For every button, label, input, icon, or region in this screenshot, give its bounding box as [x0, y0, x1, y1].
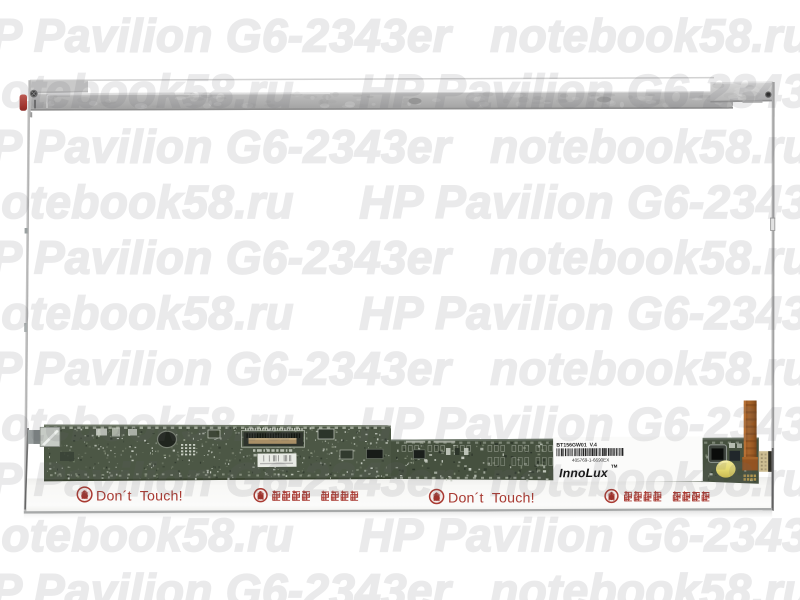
svg-text:HP Pavilion G6-2343er notebo: HP Pavilion G6-2343er notebook58.ru — [0, 10, 800, 62]
svg-text:HP Pavilion G6-2343er notebo: HP Pavilion G6-2343er notebook58.ru — [0, 343, 800, 395]
svg-text:notebook58.ru HP Pavilion: notebook58.ru HP Pavilion G6-2343er — [0, 287, 800, 339]
svg-text:notebook58.ru HP Pavilion: notebook58.ru HP Pavilion G6-2343er — [0, 398, 800, 450]
svg-text:HP Pavilion G6-2343er notebo: HP Pavilion G6-2343er notebook58.ru — [0, 121, 800, 173]
svg-text:notebook58.ru HP Pavilion: notebook58.ru HP Pavilion G6-2343er — [0, 509, 800, 561]
svg-text:HP Pavilion G6-2343er notebo: HP Pavilion G6-2343er notebook58.ru — [0, 232, 800, 284]
svg-text:notebook58.ru HP Pavilion: notebook58.ru HP Pavilion G6-2343er — [0, 65, 800, 117]
svg-text:HP Pavilion G6-2343er notebo: HP Pavilion G6-2343er notebook58.ru — [0, 454, 800, 506]
svg-text:HP Pavilion G6-2343er notebo: HP Pavilion G6-2343er notebook58.ru — [0, 565, 800, 600]
svg-text:notebook58.ru HP Pavilion: notebook58.ru HP Pavilion G6-2343er — [0, 176, 800, 228]
